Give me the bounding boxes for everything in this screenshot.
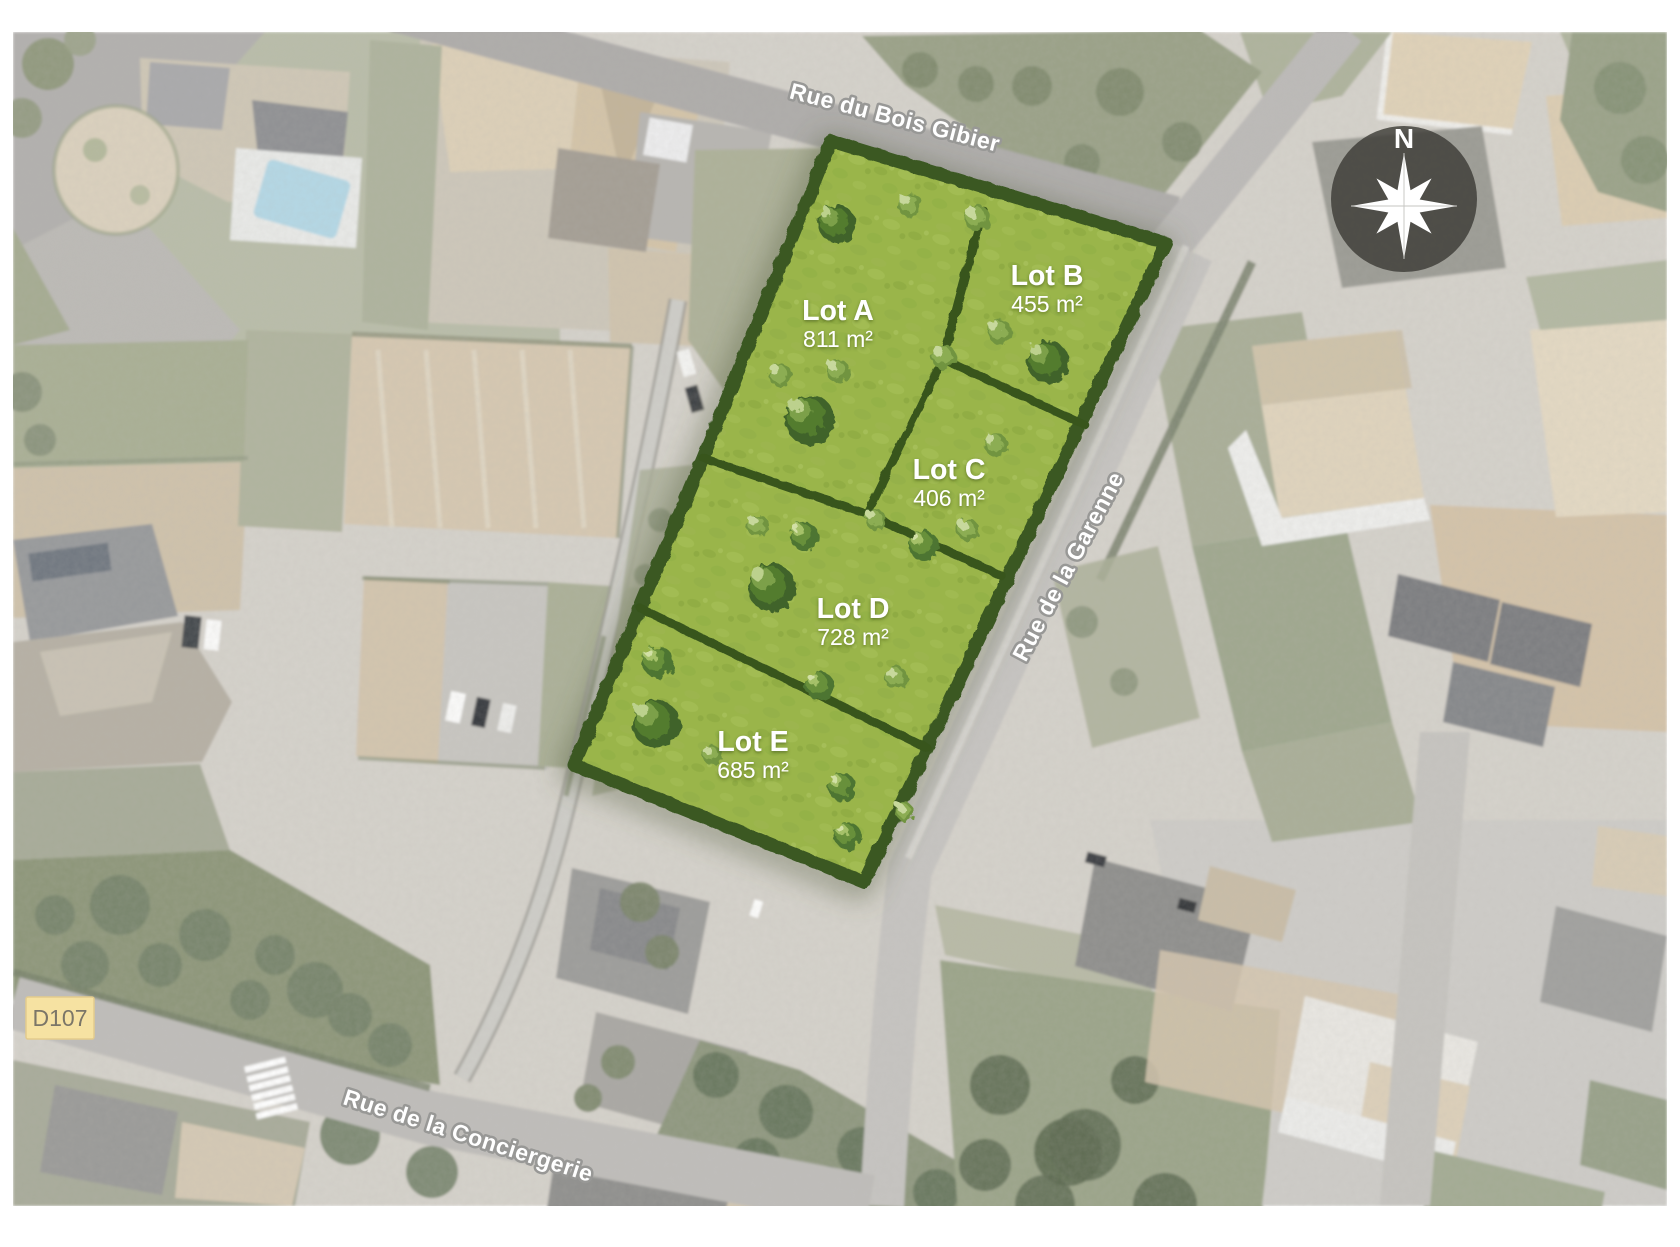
svg-text:811 m²: 811 m² — [803, 326, 873, 352]
svg-text:D107: D107 — [33, 1005, 88, 1031]
svg-text:Lot D: Lot D — [817, 593, 890, 625]
svg-text:Lot C: Lot C — [913, 454, 986, 486]
svg-text:N: N — [1394, 123, 1414, 154]
svg-text:728 m²: 728 m² — [817, 624, 889, 650]
svg-text:Lot E: Lot E — [717, 726, 788, 758]
svg-text:406 m²: 406 m² — [913, 485, 985, 511]
svg-text:685 m²: 685 m² — [717, 757, 789, 783]
svg-text:Lot B: Lot B — [1011, 260, 1084, 292]
svg-text:Lot A: Lot A — [802, 295, 874, 327]
svg-text:455 m²: 455 m² — [1011, 291, 1083, 317]
